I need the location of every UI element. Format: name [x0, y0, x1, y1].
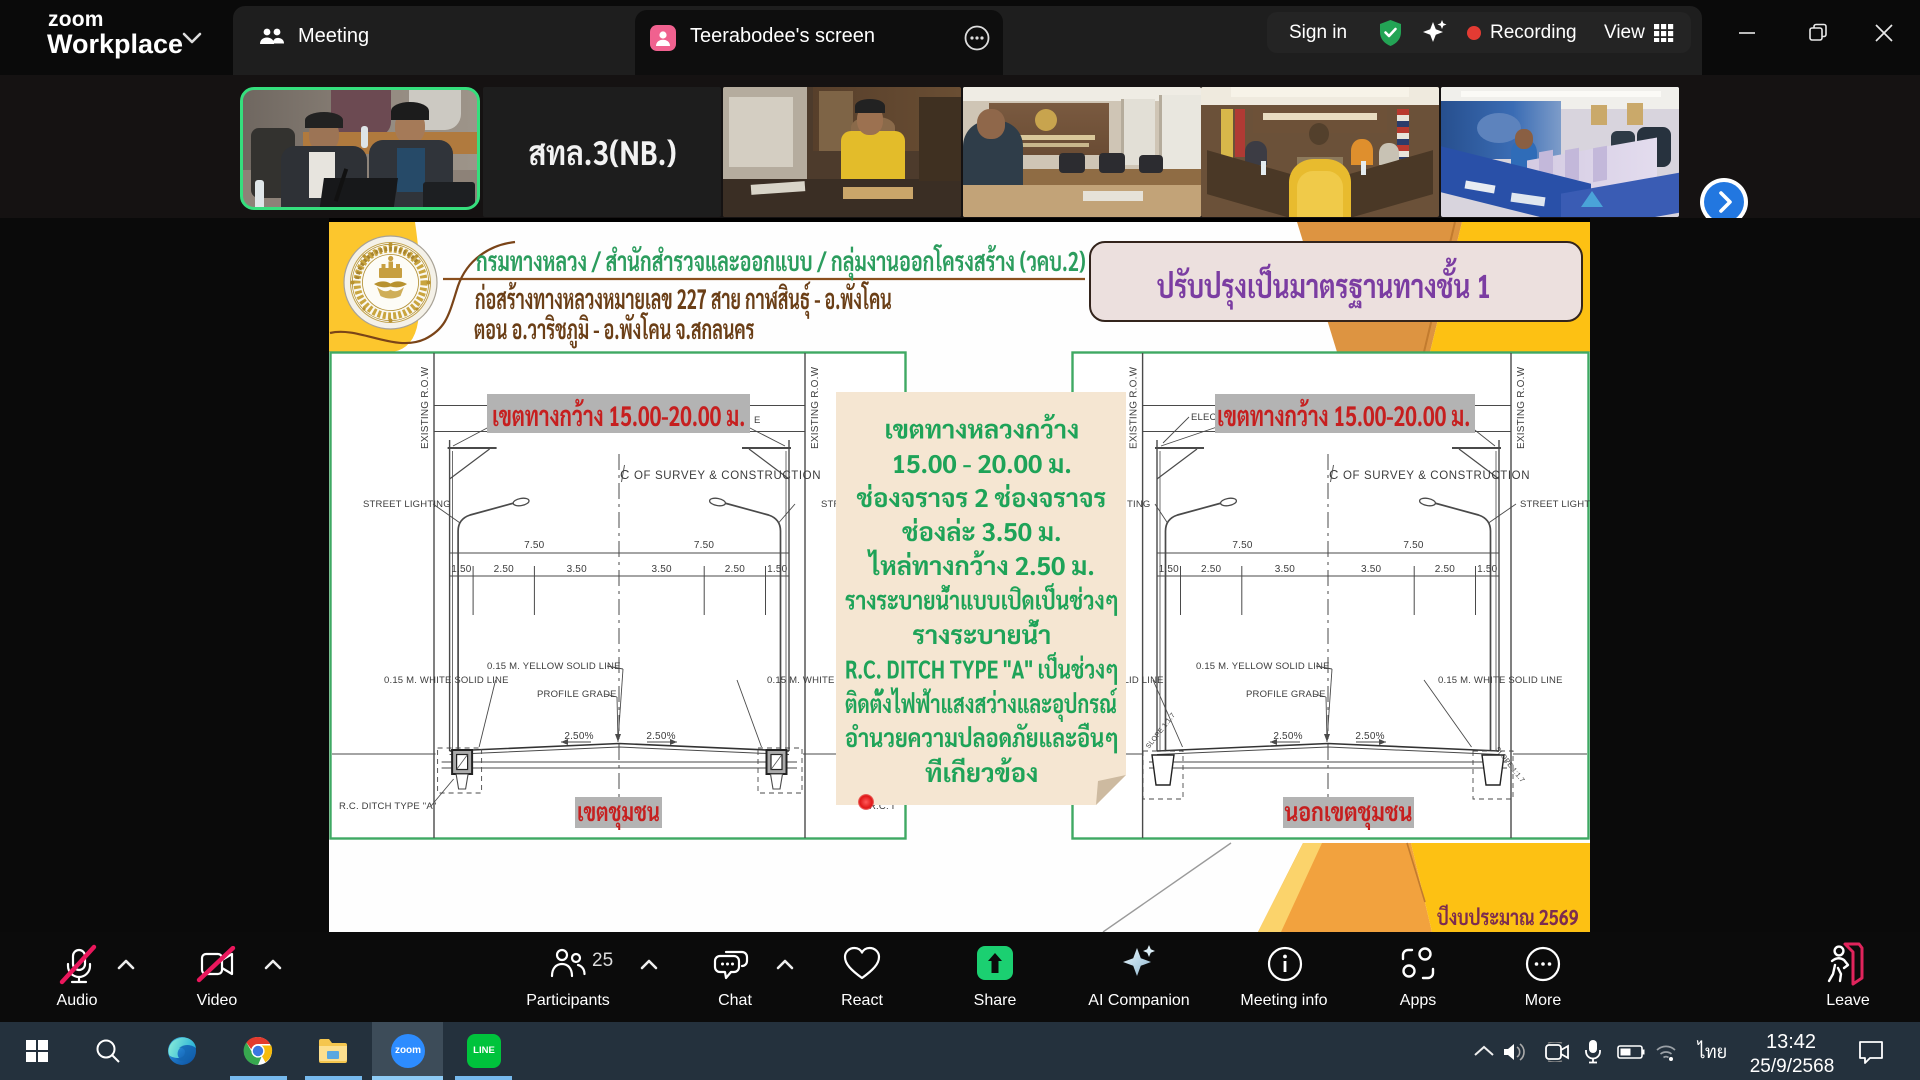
svg-text:EXISTING R.O.W: EXISTING R.O.W — [810, 366, 821, 449]
svg-text:1.50: 1.50 — [1477, 564, 1498, 575]
svg-text:PROFILE GRADE: PROFILE GRADE — [537, 689, 617, 700]
svg-text:1.50: 1.50 — [451, 564, 472, 575]
svg-text:0.15 M. YELLOW SOLID LINE: 0.15 M. YELLOW SOLID LINE — [1196, 661, 1330, 672]
svg-text:0.15 M. WHITE SOLID LINE: 0.15 M. WHITE SOLID LINE — [384, 675, 509, 686]
svg-text:3.50: 3.50 — [651, 564, 672, 575]
svg-text:C: C — [1329, 467, 1339, 482]
svg-text:3.50: 3.50 — [567, 564, 588, 575]
svg-text:EXISTING R.O.W: EXISTING R.O.W — [1516, 366, 1527, 449]
svg-text:0.15 M. YELLOW SOLID LINE: 0.15 M. YELLOW SOLID LINE — [487, 661, 621, 672]
svg-text:1.50: 1.50 — [767, 564, 788, 575]
svg-text:2.50: 2.50 — [725, 564, 746, 575]
svg-text:R.C. DITCH TYPE "A": R.C. DITCH TYPE "A" — [339, 801, 436, 812]
svg-text:3.50: 3.50 — [1361, 564, 1382, 575]
svg-text:TING: TING — [1127, 499, 1151, 510]
svg-text:OF SURVEY & CONSTRUCTION: OF SURVEY & CONSTRUCTION — [1343, 470, 1530, 482]
svg-text:EXISTING R.O.W: EXISTING R.O.W — [420, 366, 431, 449]
svg-text:2.50: 2.50 — [494, 564, 515, 575]
svg-text:2.50%: 2.50% — [1273, 731, 1302, 742]
svg-text:2.50%: 2.50% — [564, 731, 593, 742]
svg-text:3.50: 3.50 — [1275, 564, 1296, 575]
svg-text:C: C — [620, 467, 630, 482]
svg-text:EXISTING R.O.W: EXISTING R.O.W — [1129, 366, 1140, 449]
svg-text:0.15 M. WHITE SOLID LINE: 0.15 M. WHITE SOLID LINE — [1438, 675, 1563, 686]
svg-text:1.50: 1.50 — [1159, 564, 1180, 575]
svg-text:7.50: 7.50 — [1232, 540, 1253, 551]
svg-text:7.50: 7.50 — [524, 540, 545, 551]
svg-text:PROFILE GRADE: PROFILE GRADE — [1246, 689, 1326, 700]
svg-text:ELEC: ELEC — [1191, 412, 1217, 423]
svg-text:7.50: 7.50 — [694, 540, 715, 551]
svg-text:STREET LIGHTING: STREET LIGHTING — [1520, 499, 1590, 510]
svg-text:E: E — [754, 415, 761, 426]
svg-text:7.50: 7.50 — [1403, 540, 1424, 551]
svg-text:2.50: 2.50 — [1435, 564, 1456, 575]
svg-text:STREET LIGHTING: STREET LIGHTING — [363, 499, 451, 510]
svg-text:OF SURVEY & CONSTRUCTION: OF SURVEY & CONSTRUCTION — [634, 470, 821, 482]
svg-text:2.50: 2.50 — [1201, 564, 1222, 575]
